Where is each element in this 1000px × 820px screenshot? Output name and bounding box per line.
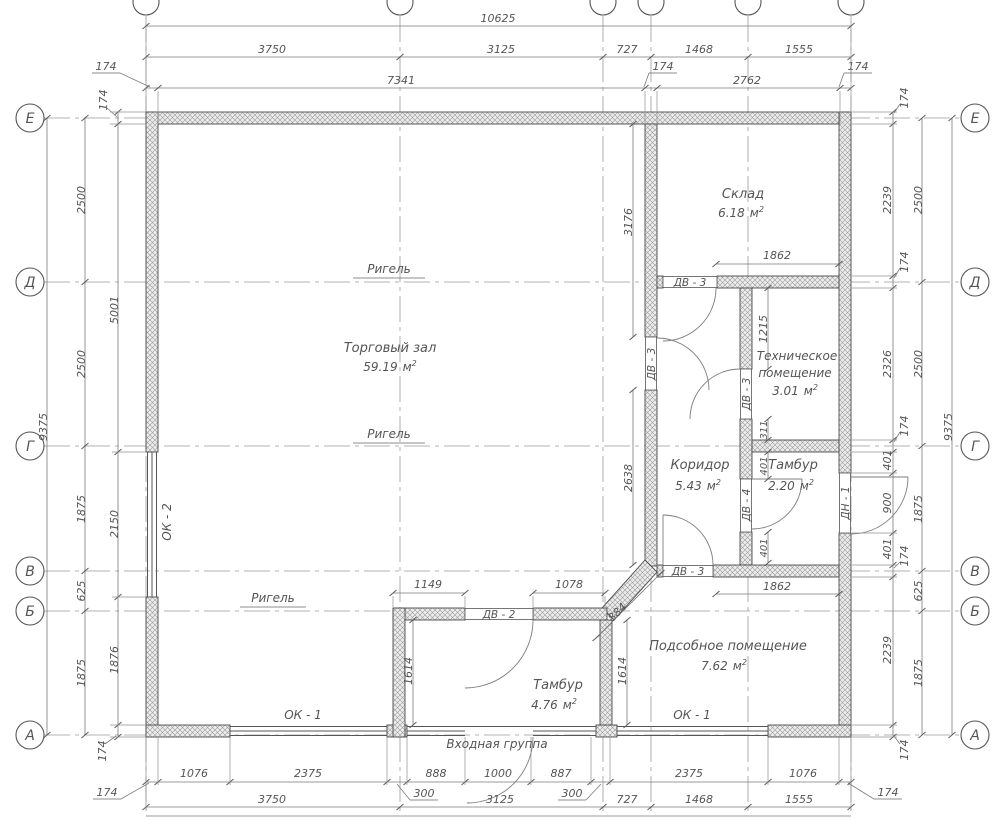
dim-bot-3750: 3750 bbox=[258, 793, 286, 806]
axis-label-v-right: В bbox=[970, 564, 980, 580]
dim-top-174-left: 174 bbox=[96, 60, 117, 73]
room-tambur-small: Тамбур 2.20м2 bbox=[768, 458, 818, 493]
room-name-sklad: Склад bbox=[722, 187, 764, 202]
floor-plan: Е Д Г В Б А Е Д Г В Б А bbox=[0, 0, 1000, 820]
dim-bot-2375b: 2375 bbox=[675, 767, 703, 780]
axis-bubble-3 bbox=[590, 0, 616, 15]
dim-right-174c: 174 bbox=[898, 416, 911, 437]
axis-bubble-2 bbox=[387, 0, 413, 15]
door-label-dv3-sklad: ДВ - 3 bbox=[673, 277, 707, 289]
door-label-dv4: ДВ - 4 bbox=[741, 489, 753, 523]
wall-teh-left-c bbox=[740, 532, 752, 565]
room-area-tambur2: 2.20м2 bbox=[768, 478, 814, 493]
room-name-teh-2: помещение bbox=[758, 366, 831, 380]
dim-int-1862a: 1862 bbox=[763, 249, 791, 262]
dim-int-1862b: 1862 bbox=[763, 580, 791, 593]
wall-top bbox=[146, 112, 851, 124]
door-label-dv3-teh: ДВ - 3 bbox=[741, 378, 753, 412]
window-ok2 bbox=[146, 452, 158, 597]
dim-int-1614b: 1614 bbox=[616, 657, 629, 685]
window-label-ok1-right: ОК - 1 bbox=[673, 708, 711, 722]
dim-left-2150: 2150 bbox=[108, 510, 121, 538]
dim-bot-1555: 1555 bbox=[785, 793, 813, 806]
door-swing-dn1 bbox=[851, 477, 908, 534]
axis-label-d-right: Д bbox=[969, 275, 981, 291]
windows bbox=[146, 452, 768, 737]
wall-left-lower bbox=[146, 597, 158, 737]
dim-bot-1076b: 1076 bbox=[789, 767, 817, 780]
dim-top-7341: 7341 bbox=[387, 74, 415, 87]
dim-top-727: 727 bbox=[617, 43, 638, 56]
wall-teh-bottom bbox=[752, 440, 839, 452]
axis-label-d-left: Д bbox=[24, 275, 36, 291]
grid-lines bbox=[44, 16, 961, 814]
dim-right-2500b: 2500 bbox=[912, 350, 925, 378]
dim-bot-174-left: 174 bbox=[97, 786, 118, 799]
dim-left-625: 625 bbox=[75, 581, 88, 602]
axis-label-b-right: Б bbox=[970, 604, 980, 620]
dim-top-2762: 2762 bbox=[733, 74, 761, 87]
room-sklad: Склад 6.18м2 bbox=[718, 187, 764, 220]
dim-right-174a: 174 bbox=[898, 88, 911, 109]
dim-top-3750: 3750 bbox=[258, 43, 286, 56]
room-podsobnoe: Подсобное помещение 7.62м2 bbox=[649, 639, 807, 673]
room-teh-pomeshchenie: Техническое помещение 3.01м2 bbox=[757, 349, 838, 398]
dim-bot-1076a: 1076 bbox=[180, 767, 208, 780]
dim-right-2500a: 2500 bbox=[912, 186, 925, 214]
room-torgovy-zal: Торговый зал 59.19м2 bbox=[344, 341, 437, 374]
dim-right-174b: 174 bbox=[898, 252, 911, 273]
room-name-kor: Коридор bbox=[670, 458, 729, 473]
room-area-kor: 5.43м2 bbox=[675, 478, 721, 493]
wall-left-upper bbox=[146, 112, 158, 452]
dim-right-174d: 174 bbox=[898, 546, 911, 567]
dims-top: 10625 3750 3125 727 1468 1555 174 7341 1… bbox=[92, 12, 872, 124]
dim-left-5001: 5001 bbox=[108, 296, 121, 324]
dim-left-1875a: 1875 bbox=[75, 495, 88, 523]
axis-bubble-6 bbox=[838, 0, 864, 15]
axis-label-v-left: В bbox=[25, 564, 35, 580]
axis-label-a-right: А bbox=[969, 728, 980, 744]
dim-int-1215: 1215 bbox=[757, 315, 770, 343]
dim-int-1078: 1078 bbox=[555, 578, 583, 591]
window-entry-left bbox=[407, 727, 465, 736]
wall-v-line-b bbox=[713, 565, 839, 577]
dim-right-9375: 9375 bbox=[942, 413, 955, 441]
dim-bot-2375a: 2375 bbox=[294, 767, 322, 780]
dim-right-2326: 2326 bbox=[881, 350, 894, 378]
dim-int-2638: 2638 bbox=[622, 464, 635, 492]
room-name-podsob: Подсобное помещение bbox=[649, 639, 807, 654]
axis-label-e-left: Е bbox=[26, 111, 35, 127]
wall-sklad-bottom-b bbox=[717, 276, 839, 288]
door-label-dv2: ДВ - 2 bbox=[482, 609, 516, 621]
axis-label-e-right: Е bbox=[971, 111, 980, 127]
dim-bot-300a: 300 bbox=[414, 787, 435, 800]
dim-bot-887: 887 bbox=[551, 767, 572, 780]
door-label-dv3-corridor-bottom: ДВ - 3 bbox=[671, 566, 705, 578]
door-label-dv3-corridor-left: ДВ - 3 bbox=[646, 348, 658, 382]
window-label-ok2: ОК - 2 bbox=[160, 503, 174, 541]
rigel-label-1: Ригель bbox=[367, 262, 410, 276]
dim-left-1876: 1876 bbox=[108, 646, 121, 674]
axis-label-g-right: Г bbox=[971, 439, 980, 455]
entrance-group-label: Входная группа bbox=[446, 737, 547, 751]
wall-sklad-bottom-a bbox=[657, 276, 663, 288]
dim-right-2239b: 2239 bbox=[881, 636, 894, 664]
dim-right-1875b: 1875 bbox=[912, 659, 925, 687]
dims-right: 174 2239 174 2326 174 401 900 401 174 22… bbox=[852, 88, 956, 761]
axis-label-a-left: А bbox=[24, 728, 35, 744]
dim-left-9375: 9375 bbox=[37, 413, 50, 441]
room-name-teh-1: Техническое bbox=[757, 349, 838, 363]
wall-right-lower bbox=[839, 533, 851, 737]
wall-corridor-left-upper bbox=[645, 124, 657, 337]
wall-bottom-3 bbox=[596, 725, 617, 737]
dim-bot-3125: 3125 bbox=[486, 793, 514, 806]
axis-bubble-5 bbox=[735, 0, 761, 15]
dims-left: 9375 2500 2500 1875 625 1875 174 5001 21… bbox=[37, 90, 146, 762]
dim-int-401b: 401 bbox=[759, 538, 770, 557]
door-swing-corridor-left bbox=[657, 338, 709, 390]
dim-left-2500a: 2500 bbox=[75, 186, 88, 214]
room-name-torg: Торговый зал bbox=[344, 341, 437, 356]
dim-int-3176: 3176 bbox=[622, 208, 635, 236]
axis-bubbles-right: Е Д Г В Б А bbox=[961, 104, 989, 749]
door-swing-dv2 bbox=[465, 620, 533, 688]
door-swing-sklad bbox=[663, 288, 716, 341]
rigel-label-3: Ригель bbox=[251, 591, 294, 605]
wall-right-upper bbox=[839, 112, 851, 473]
door-swing-corridor-bottom bbox=[663, 515, 713, 565]
dim-top-3125: 3125 bbox=[487, 43, 515, 56]
dim-10625: 10625 bbox=[481, 12, 516, 25]
axis-label-b-left: Б bbox=[25, 604, 35, 620]
dim-left-2500b: 2500 bbox=[75, 350, 88, 378]
dim-bot-174-right: 174 bbox=[878, 786, 899, 799]
dim-int-311: 311 bbox=[759, 420, 770, 439]
dim-right-625: 625 bbox=[912, 581, 925, 602]
room-name-tambur4: Тамбур bbox=[533, 678, 583, 693]
dim-top-1555: 1555 bbox=[785, 43, 813, 56]
room-area-teh: 3.01м2 bbox=[772, 383, 818, 398]
dim-right-900: 900 bbox=[881, 493, 894, 514]
dim-right-401a: 401 bbox=[881, 450, 894, 471]
room-tambur-entry: Тамбур 4.76м2 bbox=[531, 678, 583, 712]
axis-bubble-4 bbox=[638, 0, 664, 15]
dim-right-2239a: 2239 bbox=[881, 186, 894, 214]
wall-bottom-1 bbox=[146, 725, 230, 737]
window-entry-right bbox=[533, 727, 596, 736]
dim-bot-727: 727 bbox=[617, 793, 638, 806]
room-area-torg: 59.19м2 bbox=[363, 359, 417, 374]
wall-tambur-right bbox=[600, 620, 612, 725]
window-ok1-right bbox=[617, 725, 768, 737]
wall-bottom-4 bbox=[768, 725, 851, 737]
dim-bot-1000: 1000 bbox=[484, 767, 512, 780]
room-koridor: Коридор 5.43м2 bbox=[670, 458, 729, 493]
room-area-podsob: 7.62м2 bbox=[701, 658, 747, 673]
dim-bot-888: 888 bbox=[426, 767, 447, 780]
dim-left-174-bottom: 174 bbox=[96, 741, 109, 762]
dim-int-1614a: 1614 bbox=[402, 657, 415, 685]
wall-corridor-left-lower bbox=[645, 390, 657, 566]
rigel-label-2: Ригель bbox=[367, 427, 410, 441]
room-name-tambur2: Тамбур bbox=[768, 458, 818, 473]
axis-label-g-left: Г bbox=[26, 439, 35, 455]
dim-top-174-mid: 174 bbox=[653, 60, 674, 73]
wall-teh-left-b bbox=[740, 419, 752, 479]
wall-teh-left-a bbox=[740, 288, 752, 369]
room-area-tambur4: 4.76м2 bbox=[531, 697, 577, 712]
window-ok1-left bbox=[230, 725, 387, 737]
dim-top-1468: 1468 bbox=[685, 43, 713, 56]
room-area-sklad: 6.18м2 bbox=[718, 205, 764, 220]
floor-plan-drawing: Е Д Г В Б А Е Д Г В Б А bbox=[0, 0, 1000, 820]
window-label-ok1-left: ОК - 1 bbox=[284, 708, 322, 722]
dim-right-174e: 174 bbox=[898, 740, 911, 761]
dim-left-174-top: 174 bbox=[97, 90, 110, 111]
dim-bot-1468: 1468 bbox=[685, 793, 713, 806]
dim-right-1875a: 1875 bbox=[912, 495, 925, 523]
dim-bot-300b: 300 bbox=[562, 787, 583, 800]
dim-left-1875b: 1875 bbox=[75, 659, 88, 687]
door-swing-teh bbox=[690, 369, 740, 419]
axis-bubble-1 bbox=[133, 0, 159, 15]
dims-interior: 3176 2638 1862 1215 311 401 401 1862 884… bbox=[390, 121, 843, 728]
wall-tambur-top-b bbox=[533, 608, 607, 620]
dim-right-401b: 401 bbox=[881, 539, 894, 560]
dim-int-1149: 1149 bbox=[414, 578, 442, 591]
door-label-dn1: ДН - 1 bbox=[840, 486, 852, 520]
